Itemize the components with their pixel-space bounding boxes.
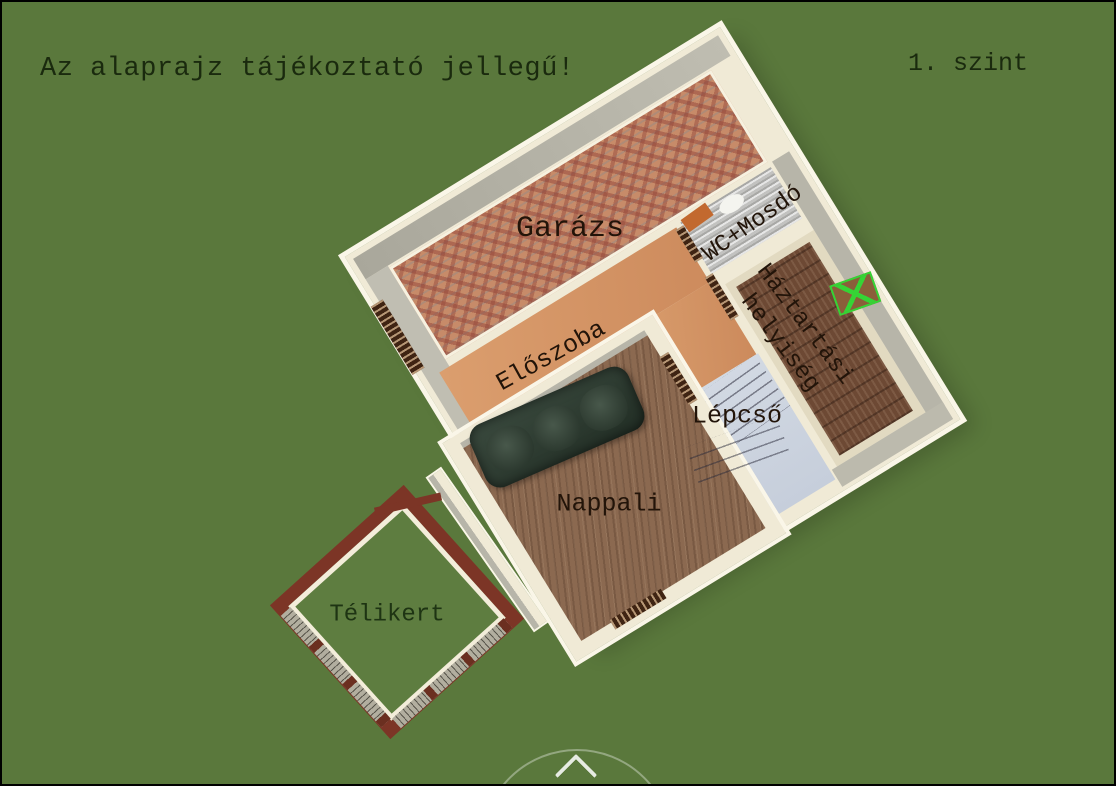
nappali-label: Nappali: [556, 490, 661, 519]
sofa-cushion: [527, 399, 588, 458]
lepcso-label: Lépcső: [692, 402, 782, 431]
telikert-label: Télikert: [329, 602, 444, 629]
sofa-cushion: [480, 419, 541, 478]
sofa-cushion: [573, 378, 634, 437]
floor-level-label: 1. szint: [908, 49, 1028, 78]
disclaimer-text: Az alaprajz tájékoztató jellegű!: [40, 54, 574, 84]
floor-plan-viewer: Az alaprajz tájékoztató jellegű! 1. szin…: [0, 0, 1116, 786]
garazs-label: Garázs: [516, 212, 624, 246]
